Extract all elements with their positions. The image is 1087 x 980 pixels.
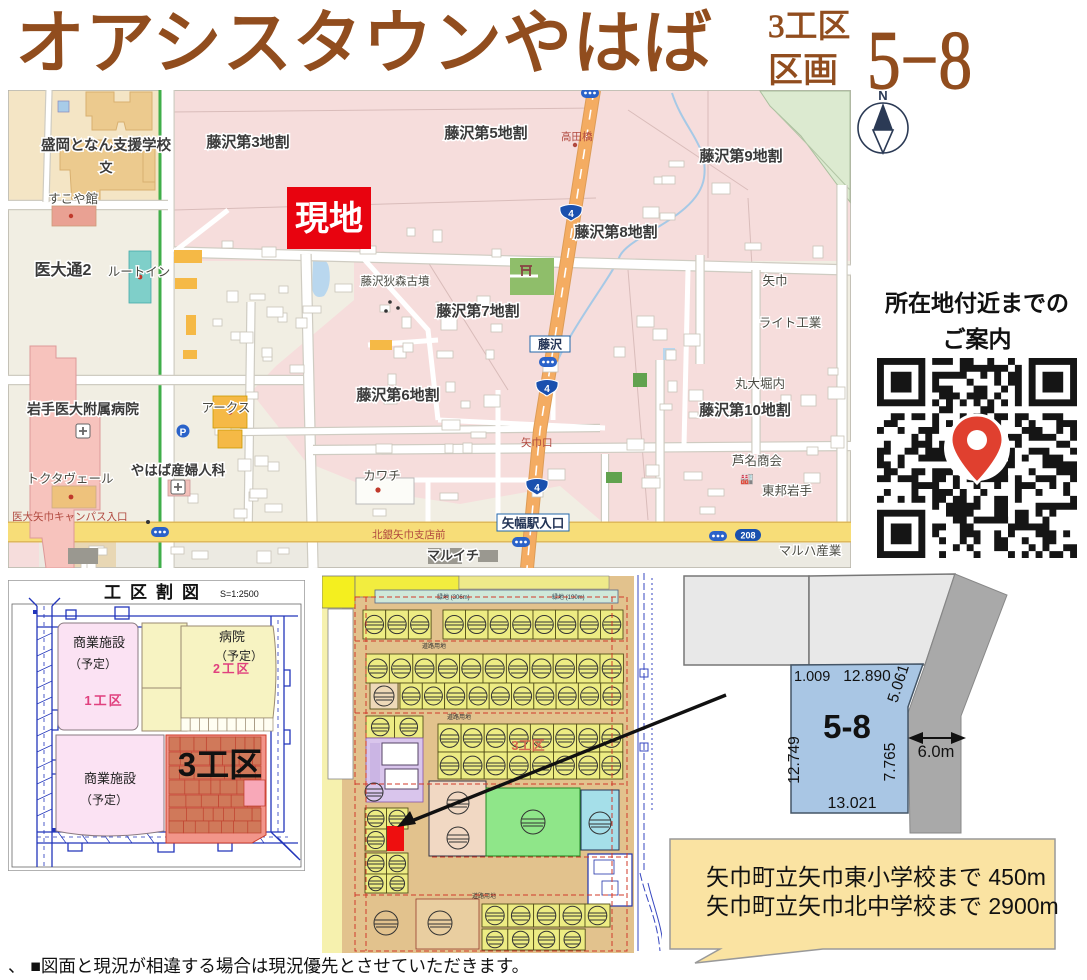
svg-text:（予定）: （予定） — [80, 793, 128, 807]
svg-text:4: 4 — [568, 209, 574, 220]
svg-text:藤沢第3地割: 藤沢第3地割 — [206, 133, 289, 151]
svg-text:藤沢第9地割: 藤沢第9地割 — [699, 147, 782, 165]
svg-text:1工区: 1工区 — [84, 693, 123, 708]
svg-text:13.021: 13.021 — [828, 795, 877, 812]
svg-text:12.749: 12.749 — [786, 736, 803, 783]
svg-text:病院: 病院 — [219, 629, 245, 644]
svg-text:藤沢第8地割: 藤沢第8地割 — [574, 223, 657, 241]
svg-text:藤沢第10地割: 藤沢第10地割 — [699, 401, 791, 419]
svg-text:工区割図: 工区割図 — [104, 582, 208, 602]
svg-text:すこや館: すこや館 — [48, 192, 98, 206]
svg-text:（予定）: （予定） — [69, 657, 117, 671]
svg-text:ルートイン: ルートイン — [108, 265, 171, 279]
svg-text:道路用地: 道路用地 — [422, 642, 446, 650]
svg-text:文: 文 — [99, 160, 113, 175]
svg-text:矢幅駅入口: 矢幅駅入口 — [501, 516, 565, 531]
svg-text:藤沢: 藤沢 — [538, 337, 563, 352]
svg-text:藤沢狄森古墳: 藤沢狄森古墳 — [361, 274, 430, 288]
svg-text:N: N — [878, 88, 887, 103]
svg-text:高田橋: 高田橋 — [561, 130, 593, 143]
svg-text:やはば産婦人科: やはば産婦人科 — [131, 462, 226, 478]
svg-text:矢巾口: 矢巾口 — [521, 436, 553, 449]
svg-text:藤沢第6地割: 藤沢第6地割 — [356, 386, 439, 404]
svg-text:医大矢巾キャンパス入口: 医大矢巾キャンパス入口 — [12, 510, 128, 523]
svg-text:🏭: 🏭 — [740, 472, 754, 485]
svg-text:藤沢第5地割: 藤沢第5地割 — [444, 124, 527, 142]
svg-text:カワチ: カワチ — [363, 469, 401, 483]
svg-text:矢巾: 矢巾 — [762, 274, 787, 288]
svg-text:2工区: 2工区 — [213, 662, 251, 676]
svg-text:北銀矢巾支店前: 北銀矢巾支店前 — [372, 528, 446, 541]
svg-text:P: P — [180, 428, 187, 439]
svg-text:7.765: 7.765 — [882, 743, 899, 782]
svg-text:芦名商会: 芦名商会 — [732, 453, 783, 468]
svg-text:6.0m: 6.0m — [918, 743, 955, 761]
svg-text:1.009: 1.009 — [794, 669, 830, 685]
svg-text:盛岡となん支援学校: 盛岡となん支援学校 — [41, 136, 172, 154]
svg-text:12.890: 12.890 — [843, 668, 891, 685]
svg-text:4: 4 — [544, 384, 550, 395]
svg-text:商業施設: 商業施設 — [84, 771, 136, 786]
svg-text:トクタヴェール: トクタヴェール — [26, 471, 113, 486]
svg-text:208: 208 — [740, 531, 755, 541]
svg-text:現地: 現地 — [295, 200, 363, 238]
svg-text:ライト工業: ライト工業 — [759, 315, 822, 330]
svg-text:S=1:2500: S=1:2500 — [220, 589, 259, 599]
svg-text:マルイチ: マルイチ — [427, 548, 479, 563]
svg-text:3工区: 3工区 — [178, 746, 262, 783]
svg-text:4: 4 — [534, 483, 540, 494]
svg-text:商業施設: 商業施設 — [73, 635, 125, 650]
svg-text:5-8: 5-8 — [823, 708, 871, 745]
svg-text:東邦岩手: 東邦岩手 — [762, 483, 812, 498]
svg-text:（予定）: （予定） — [215, 649, 263, 663]
svg-text:丸大堀内: 丸大堀内 — [735, 376, 785, 391]
svg-text:マルハ産業: マルハ産業 — [779, 543, 842, 558]
svg-text:医大通2: 医大通2 — [35, 260, 92, 279]
svg-text:岩手医大附属病院: 岩手医大附属病院 — [26, 401, 139, 417]
svg-text:藤沢第7地割: 藤沢第7地割 — [436, 302, 519, 320]
svg-text:アークス: アークス — [202, 401, 251, 415]
